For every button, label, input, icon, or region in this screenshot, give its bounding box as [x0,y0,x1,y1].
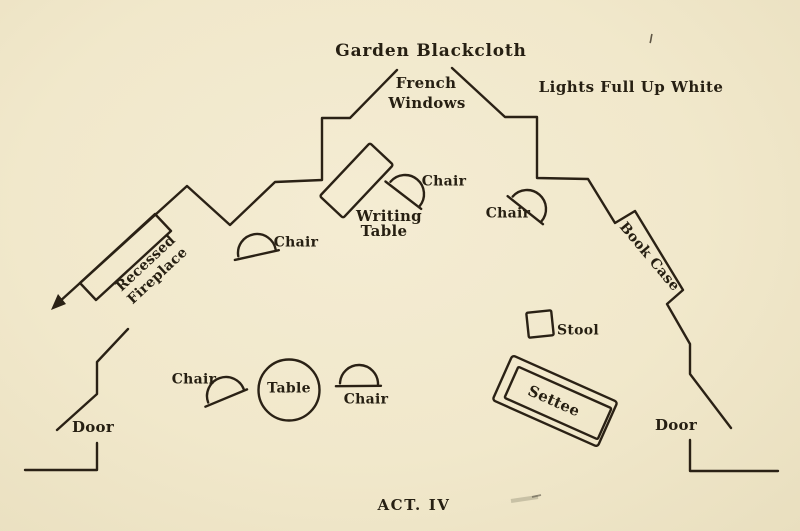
label-french-windows-line2: Windows [388,94,465,112]
label-lights-note: Lights Full Up White [539,78,724,96]
label-chair-down-center: Chair [344,392,389,409]
label-garden-blackcloth: Garden Blackcloth [335,41,526,61]
label-french-windows-line1: French [396,74,457,92]
chair-by-fireplace-shape [231,230,279,259]
label-writing-table-line2: Table [361,222,408,240]
wall-left-upper [58,70,397,303]
chair-down-center-shape [336,364,382,388]
label-chair-stage-left: Chair [486,206,531,223]
label-act-caption: ACT. IV [377,496,450,514]
label-chair-down-left: Chair [172,372,217,389]
wall-left-lower [25,329,128,470]
label-round-table: Table [267,381,311,398]
paper-smudge-tip [532,495,541,497]
stool-shape [526,310,553,337]
label-chair-by-fireplace: Chair [274,235,319,252]
paper-smudge [511,497,538,501]
label-stool: Stool [557,323,599,340]
label-chair-at-writing-table: Chair [422,174,467,191]
paper-fleck [650,34,652,43]
scanned-stage-plan-page: Garden Blackcloth French Windows Lights … [0,0,800,531]
label-door-right: Door [655,416,697,434]
label-door-left: Door [72,418,114,436]
